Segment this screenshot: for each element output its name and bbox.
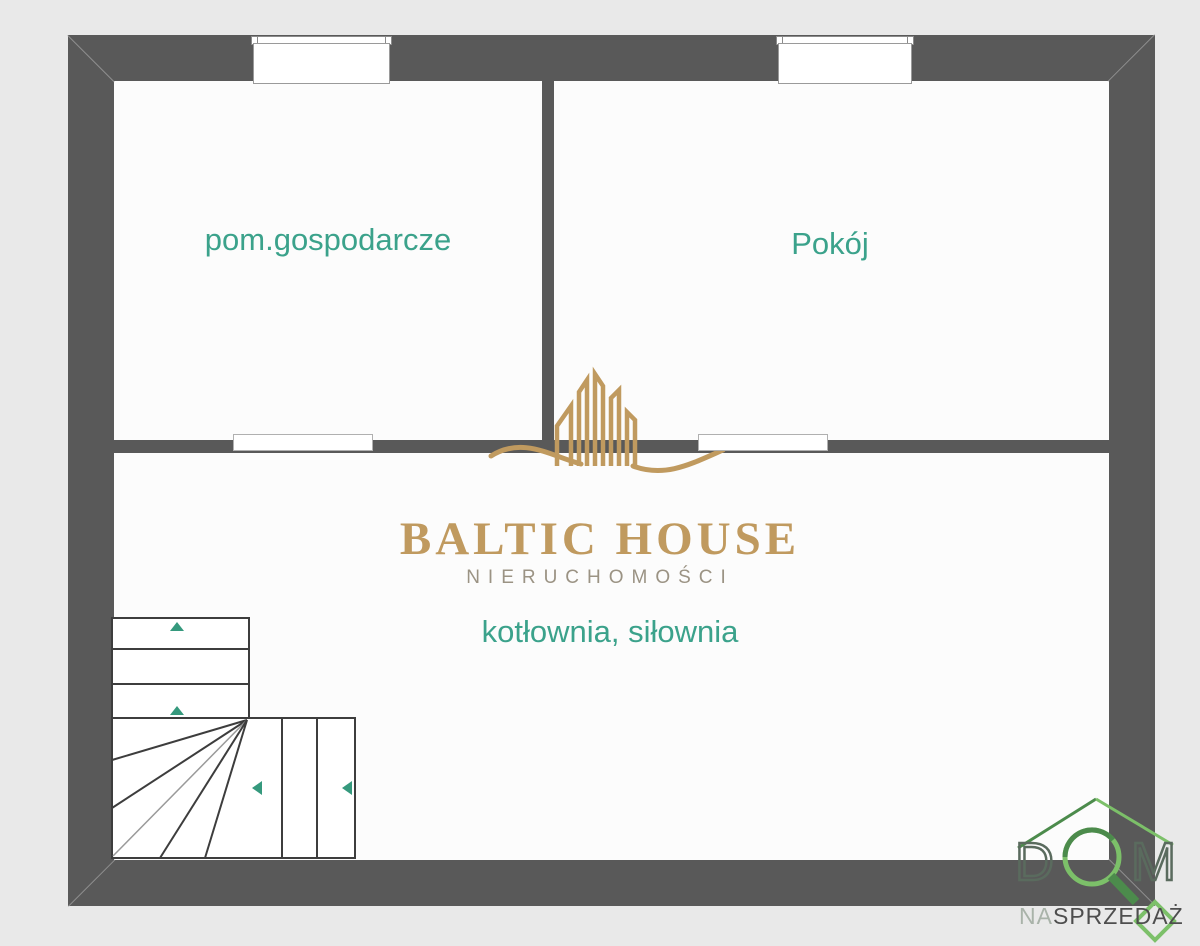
baltic-house-building-icon xyxy=(487,364,727,484)
window xyxy=(777,36,913,84)
logo-tagline-na: NA xyxy=(1019,903,1053,929)
logo-letter-m: M xyxy=(1131,832,1176,892)
watermark-tagline-text: NIERUCHOMOŚCI xyxy=(400,567,800,589)
room-label-pokoj: Pokój xyxy=(730,226,930,262)
door-opening xyxy=(698,434,828,451)
room-label-pom-gospodarcze: pom.gospodarcze xyxy=(178,222,478,258)
staircase xyxy=(100,608,365,868)
room-label-kotlownia-silownia: kotłownia, siłownia xyxy=(410,614,810,650)
door-opening xyxy=(233,434,373,451)
window xyxy=(252,36,391,84)
logo-letter-d: D xyxy=(1015,832,1054,892)
window-pane xyxy=(253,43,390,84)
floor-plan-canvas: BALTIC HOUSE NIERUCHOMOŚCI pom.gospodarc… xyxy=(0,0,1200,946)
logo-tagline-sprzedaz: SPRZEDAŻ xyxy=(1053,903,1184,929)
window-pane xyxy=(778,43,912,84)
watermark-brand-text: BALTIC HOUSE xyxy=(370,512,830,566)
dom-na-sprzedaz-logo: D M NA SPRZEDAŻ xyxy=(1005,778,1200,946)
